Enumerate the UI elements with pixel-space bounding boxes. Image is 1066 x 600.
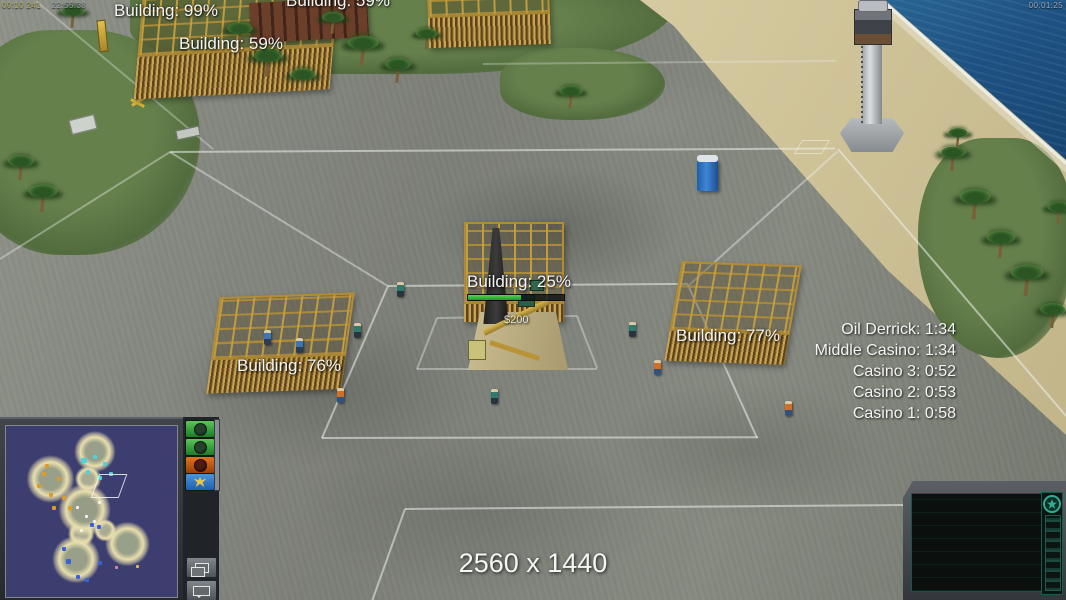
palm-tree bbox=[957, 189, 993, 221]
player-button-2[interactable] bbox=[185, 438, 215, 456]
sidebar-scrollbar[interactable] bbox=[214, 419, 220, 491]
building-progress-label: Building: 77% bbox=[676, 326, 780, 346]
palm-tree bbox=[288, 68, 318, 95]
rank-star-icon bbox=[1043, 495, 1061, 513]
minimap-blip bbox=[136, 565, 139, 568]
windows-button[interactable] bbox=[186, 557, 217, 578]
palm-tree bbox=[320, 11, 347, 35]
minimap-blip bbox=[68, 506, 72, 510]
construction-site-top-right[interactable] bbox=[427, 0, 551, 48]
countdown-item: Casino 1: 0:58 bbox=[815, 403, 956, 424]
worker-unit[interactable] bbox=[264, 330, 271, 345]
player-button-1[interactable] bbox=[185, 420, 215, 438]
minimap-blip bbox=[85, 578, 89, 582]
civilian-unit[interactable] bbox=[491, 389, 498, 404]
construction-site-left[interactable] bbox=[206, 292, 354, 393]
lighthouse-ladder bbox=[861, 45, 863, 123]
command-panel bbox=[903, 481, 1066, 600]
building-progress-label: Building: 59% bbox=[179, 34, 283, 54]
chat-icon bbox=[193, 586, 210, 596]
worker-unit[interactable] bbox=[296, 338, 303, 353]
player-emblem-icon bbox=[194, 441, 207, 454]
player-emblem-icon bbox=[194, 459, 207, 472]
countdown-item: Casino 2: 0:53 bbox=[815, 382, 956, 403]
lighthouse-cabin bbox=[854, 9, 892, 45]
minimap-blip bbox=[93, 455, 97, 459]
minimap-blip bbox=[57, 477, 61, 481]
build-progress-bar bbox=[467, 294, 565, 301]
palm-tree bbox=[985, 231, 1018, 261]
palm-tree bbox=[946, 128, 970, 150]
command-panel-screen bbox=[911, 493, 1042, 592]
player-emblem-icon bbox=[194, 423, 207, 436]
palm-tree bbox=[27, 185, 60, 215]
minimap-blip bbox=[62, 496, 66, 500]
minimap-blip bbox=[81, 458, 87, 463]
minimap-blip bbox=[80, 529, 83, 532]
command-panel-side-strip bbox=[1041, 492, 1063, 595]
palm-tree bbox=[558, 85, 585, 109]
minimap-blip bbox=[45, 464, 49, 468]
build-progress-fill bbox=[468, 295, 521, 300]
building-progress-label: Building: 59% bbox=[286, 0, 390, 11]
palm-tree bbox=[1046, 201, 1066, 225]
equipment-crate bbox=[468, 340, 486, 360]
minimap-blip bbox=[90, 523, 94, 527]
palm-tree bbox=[414, 28, 440, 51]
lighthouse-tower[interactable] bbox=[836, 0, 908, 156]
lighthouse-column bbox=[862, 42, 882, 124]
chat-button[interactable] bbox=[186, 580, 217, 600]
replay-timer: 00:10 241 22:55:38 bbox=[2, 1, 86, 10]
worker-unit[interactable] bbox=[654, 360, 661, 375]
minimap-frame bbox=[0, 417, 185, 600]
civilian-unit[interactable] bbox=[354, 323, 361, 338]
clock-text: 22:55:38 bbox=[52, 1, 86, 10]
player-button-3[interactable] bbox=[185, 456, 215, 474]
minimap-blip bbox=[52, 506, 56, 510]
countdown-item: Oil Derrick: 1:34 bbox=[815, 319, 956, 340]
worker-unit[interactable] bbox=[785, 401, 792, 416]
palm-tree bbox=[6, 155, 36, 182]
game-viewport[interactable]: Building: 99% Building: 59% Building: 59… bbox=[0, 0, 1066, 600]
windows-icon bbox=[195, 563, 209, 573]
countdown-item: Middle Casino: 1:34 bbox=[815, 340, 956, 361]
player-button-4[interactable] bbox=[185, 473, 215, 491]
building-progress-label: Building: 25% bbox=[467, 272, 571, 292]
usa-eagle-icon bbox=[194, 477, 207, 487]
countdown-list: Oil Derrick: 1:34 Middle Casino: 1:34 Ca… bbox=[815, 319, 956, 424]
minimap-blip bbox=[37, 484, 41, 488]
building-progress-label: Building: 99% bbox=[114, 1, 218, 21]
palm-tree bbox=[1038, 303, 1066, 330]
palm-tree bbox=[938, 146, 968, 173]
minimap-blip bbox=[66, 559, 71, 564]
civilian-unit[interactable] bbox=[629, 322, 636, 337]
minimap[interactable] bbox=[5, 425, 178, 598]
game-timer-text: 00:10 241 bbox=[2, 1, 41, 10]
countdown-item: Casino 3: 0:52 bbox=[815, 361, 956, 382]
palm-tree bbox=[1008, 265, 1046, 299]
palm-tree bbox=[383, 58, 413, 85]
price-tag: $200 bbox=[504, 314, 528, 326]
scaffold-grid bbox=[211, 292, 355, 360]
palm-tree bbox=[345, 35, 381, 67]
minimap-blip bbox=[76, 575, 80, 579]
minimap-blip bbox=[85, 515, 88, 518]
building-progress-label: Building: 76% bbox=[237, 356, 341, 376]
lighthouse-cap bbox=[858, 0, 888, 12]
mission-timer: 00:01:25 bbox=[1029, 1, 1063, 10]
rank-slots bbox=[1045, 515, 1061, 591]
scaffold-log-wall bbox=[428, 14, 551, 48]
resolution-label: 2560 x 1440 bbox=[459, 548, 608, 579]
construction-site-right[interactable] bbox=[664, 261, 801, 365]
civilian-unit[interactable] bbox=[397, 282, 404, 297]
minimap-blip bbox=[103, 462, 107, 466]
minimap-blip bbox=[98, 561, 102, 565]
scaffold-grid bbox=[670, 261, 802, 335]
observer-sidebar bbox=[183, 417, 219, 600]
minimap-blip bbox=[42, 472, 46, 476]
worker-unit[interactable] bbox=[337, 388, 344, 403]
minimap-islands bbox=[6, 426, 177, 597]
minimap-blip bbox=[97, 525, 101, 529]
minimap-blip bbox=[49, 493, 53, 497]
porta-potty bbox=[697, 160, 718, 191]
